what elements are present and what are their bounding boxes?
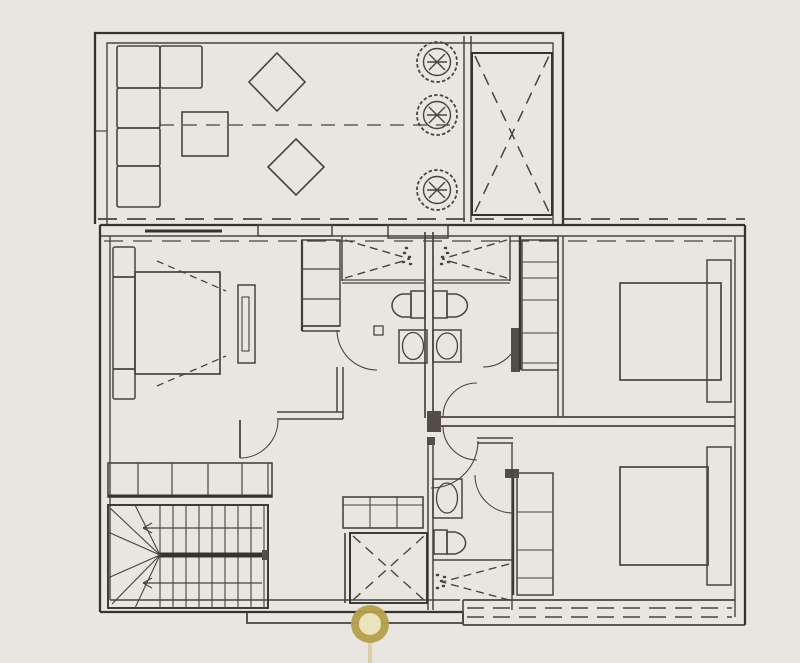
planter-1-cross [427, 54, 447, 70]
bathroomL-south-wall [302, 326, 340, 331]
bathroomR-door-stub [511, 328, 520, 372]
stair-gallery [108, 463, 272, 497]
bed1-headboard [113, 277, 135, 369]
toiletL-tank [411, 291, 425, 318]
bed2-mattress [620, 283, 721, 380]
sofa-seat-4 [117, 128, 160, 166]
bed1-nightstand-a [113, 247, 135, 277]
shower3-spray [442, 564, 509, 600]
top-wall-block-1 [258, 225, 332, 236]
bathroomL-door-stub [374, 326, 383, 335]
divider-door-arc-up [443, 383, 477, 417]
skylight-x [475, 56, 549, 212]
bedroom1-door-arc [240, 420, 278, 458]
bed1-blanket-fold-a [157, 261, 226, 291]
showerL-spray [345, 240, 410, 278]
bedroom1-south-wall [277, 367, 343, 419]
toiletR-tank [433, 291, 447, 318]
showerL-drain-dots [403, 248, 411, 264]
toilet3-tank [434, 530, 447, 554]
bedroom3-door-arc [475, 475, 513, 513]
side-table-diamond-2 [268, 139, 324, 195]
bedroom1-dresser-inner [242, 297, 249, 351]
closet-bedroom3-dividers [517, 512, 553, 578]
bathroom3-door-nub [427, 437, 435, 445]
stair-landing-nub [262, 550, 268, 560]
sinkL-counter [399, 330, 427, 363]
elevator-x [353, 536, 424, 600]
bed1-mattress [135, 272, 220, 374]
stair-arrow-up [143, 523, 262, 533]
bathroom3-west-wall [428, 443, 433, 610]
stair-gallery-dividers [138, 463, 242, 495]
floor-plan [0, 0, 800, 663]
showerR-spray [442, 240, 507, 278]
side-table-diamond-1 [249, 53, 305, 111]
elevator-shaft [350, 533, 427, 603]
floor-plan-stage [0, 0, 800, 663]
bed3-mattress [620, 467, 708, 565]
showerL-bottom [342, 280, 425, 283]
sinkR-counter [433, 330, 461, 362]
bedroomR-west-wall [558, 236, 563, 417]
closet-bedroom3 [517, 473, 553, 595]
sofa-seat-1 [117, 46, 160, 88]
showerR-drain-dots [441, 248, 449, 264]
bathroom3-north-wall [477, 438, 513, 443]
rooms-divider-wall [428, 417, 735, 426]
sink3-basin [437, 483, 458, 513]
terrace-inner-wall [107, 43, 553, 224]
toiletR-bowl [447, 294, 467, 317]
sofa-seat-3 [117, 88, 160, 128]
bathroomL-door-arc [337, 330, 377, 370]
closet-hall-left [302, 240, 340, 326]
click-marker-inner [359, 613, 381, 635]
planter-2-cross [427, 107, 447, 123]
hall-cabinet [343, 497, 423, 528]
sinkL-basin [403, 333, 424, 360]
closet-hall-right-dividers [522, 262, 558, 363]
planter-3-cross [427, 182, 447, 198]
bed1-nightstand-b [113, 369, 135, 399]
bathroom3-door-arc [431, 441, 478, 488]
bathrooms-center-wall [425, 232, 433, 418]
hall-cabinet-dividers [370, 497, 397, 528]
divider-door-arc-down [443, 426, 477, 460]
toilet3-bowl [447, 532, 466, 554]
closet-hall-right [522, 240, 558, 370]
showerR-bottom [433, 280, 510, 283]
bed1-blanket-fold-b [157, 356, 226, 386]
stair-winders [108, 505, 160, 608]
sinkR-basin [437, 333, 458, 359]
closet-hall-left-dividers [302, 269, 340, 299]
sofa-seat-5 [117, 166, 160, 207]
toiletL-bowl [392, 294, 411, 317]
sofa-seat-2 [160, 46, 202, 88]
stair-arrow-down [143, 578, 262, 588]
coffee-table [182, 112, 228, 156]
divider-door-stub [427, 411, 441, 432]
terrace-outer-wall [95, 33, 563, 224]
planter-screen-wall [464, 36, 471, 222]
bed3-headboard [707, 447, 731, 585]
